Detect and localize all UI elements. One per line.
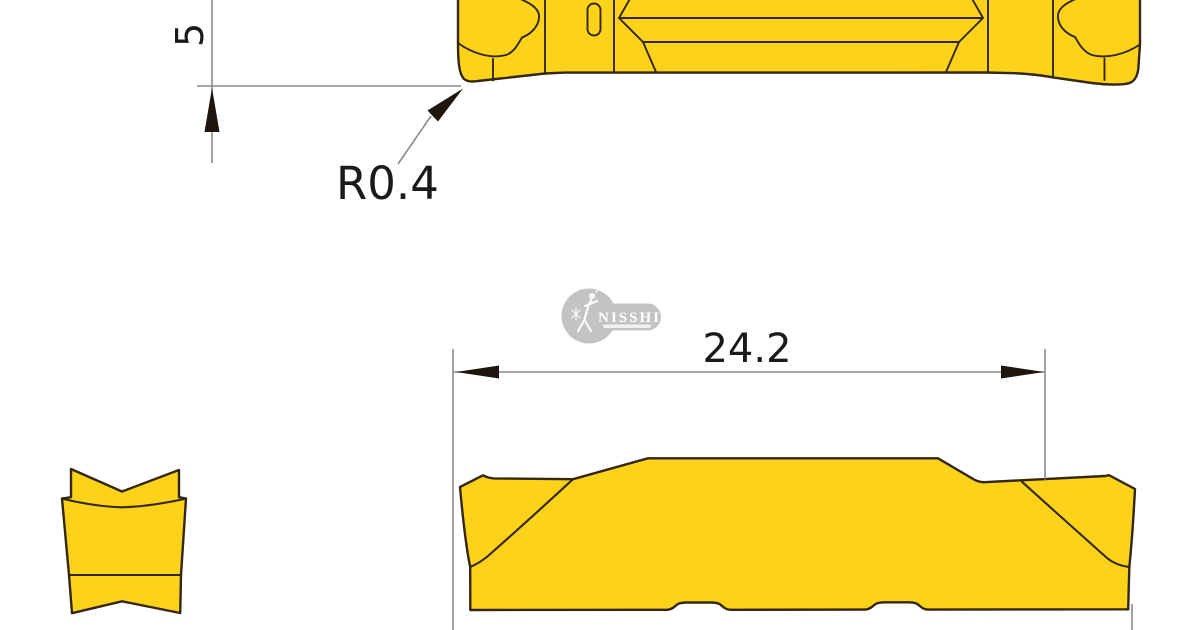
logo-tagline	[603, 325, 651, 329]
end-view	[62, 469, 186, 613]
radius-dim-label: R0.4	[336, 157, 439, 210]
length-arrow-left	[456, 366, 499, 379]
end-view-outline	[62, 469, 186, 613]
height-dim-label: 5	[168, 23, 212, 47]
nisshin-logo: NISSHIN	[562, 283, 674, 344]
radius-arrow	[428, 89, 464, 122]
logo-figure-sword	[596, 283, 604, 292]
top-view	[458, 0, 1140, 85]
length-dim-label: 24.2	[702, 326, 791, 372]
side-view	[460, 458, 1135, 610]
height-arrow-up	[205, 88, 220, 132]
insert-drawing-svg: 5 24.2 R0.4 NISSHIN	[0, 0, 1200, 630]
dimension-arrows	[205, 88, 1045, 379]
length-arrow-right	[1001, 366, 1044, 379]
logo-wordmark: NISSHIN	[598, 310, 674, 326]
logo-figure-head	[589, 293, 595, 299]
technical-drawing-page: 5 24.2 R0.4 NISSHIN	[0, 0, 1200, 630]
side-view-outline	[460, 458, 1135, 610]
